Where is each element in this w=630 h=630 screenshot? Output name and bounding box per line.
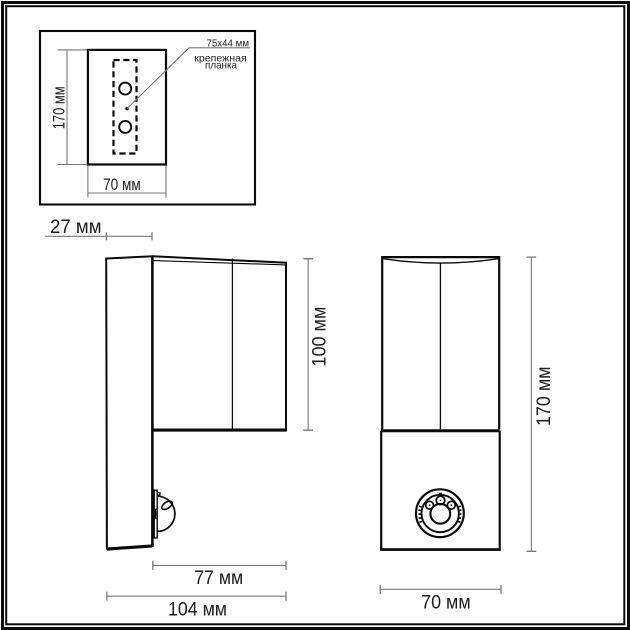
svg-text:70 мм: 70 мм (421, 591, 471, 613)
svg-text:77 мм: 77 мм (194, 567, 243, 589)
svg-text:27 мм: 27 мм (50, 216, 102, 238)
svg-text:планка: планка (205, 60, 237, 72)
svg-text:75x44 мм: 75x44 мм (207, 37, 250, 49)
svg-text:170 мм: 170 мм (50, 86, 68, 129)
svg-text:170 мм: 170 мм (533, 367, 555, 427)
svg-text:100 мм: 100 мм (309, 307, 331, 367)
svg-text:104 мм: 104 мм (168, 599, 227, 621)
svg-text:70 мм: 70 мм (103, 176, 141, 194)
